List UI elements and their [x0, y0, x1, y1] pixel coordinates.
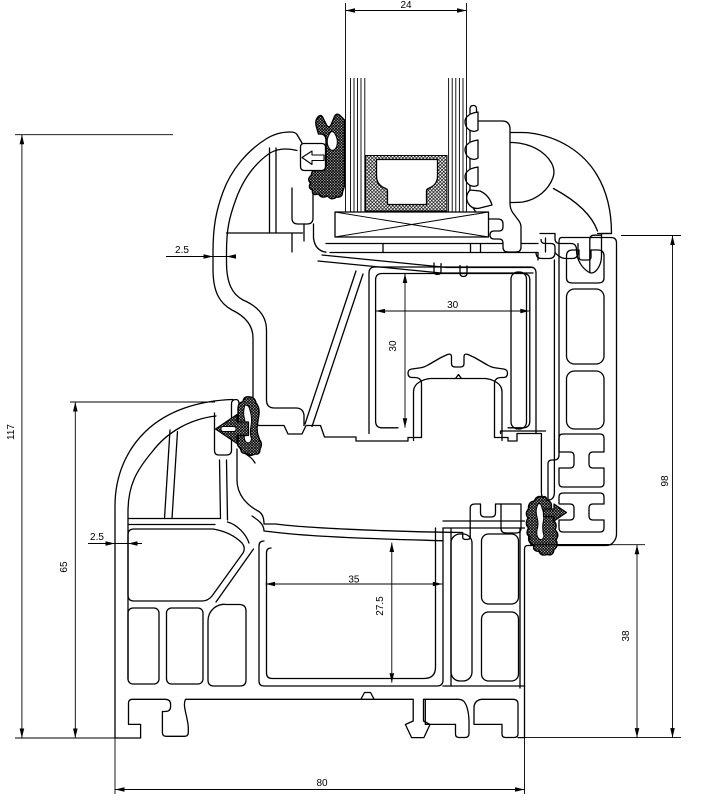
svg-text:35: 35	[348, 575, 360, 586]
svg-text:65: 65	[59, 561, 70, 573]
svg-text:30: 30	[447, 300, 459, 311]
svg-text:2.5: 2.5	[90, 532, 104, 543]
svg-text:24: 24	[400, 0, 412, 11]
svg-text:80: 80	[316, 778, 328, 789]
svg-text:2.5: 2.5	[175, 245, 189, 256]
svg-text:38: 38	[621, 630, 632, 642]
svg-text:30: 30	[388, 340, 399, 352]
svg-text:98: 98	[660, 475, 671, 487]
svg-text:27.5: 27.5	[375, 596, 386, 616]
svg-text:117: 117	[6, 424, 17, 440]
